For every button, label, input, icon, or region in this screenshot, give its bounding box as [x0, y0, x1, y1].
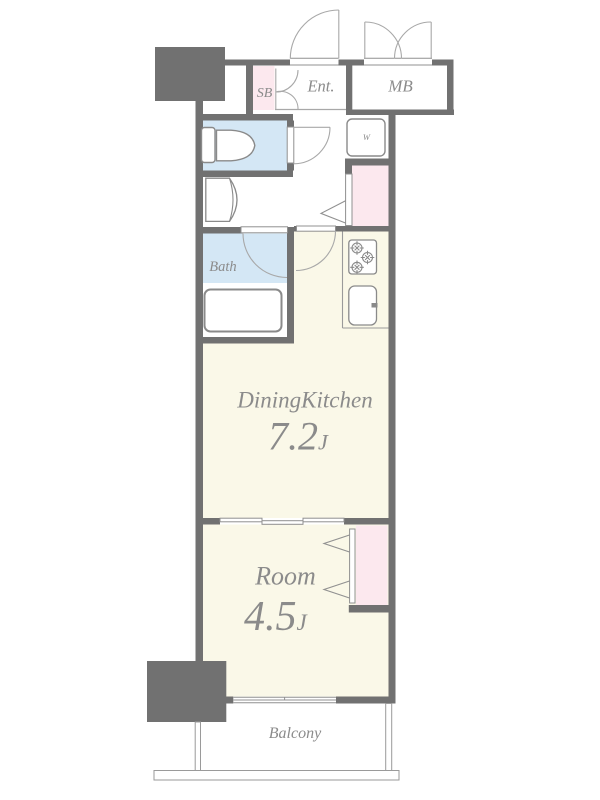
svg-text:MB: MB	[387, 77, 413, 96]
svg-text:Balcony: Balcony	[269, 725, 322, 742]
svg-text:W: W	[363, 132, 371, 142]
svg-text:DiningKitchen: DiningKitchen	[236, 388, 372, 413]
svg-text:SB: SB	[257, 86, 273, 101]
svg-text:Room: Room	[254, 562, 316, 591]
svg-text:Ent.: Ent.	[306, 77, 334, 96]
svg-text:Bath: Bath	[209, 259, 236, 275]
